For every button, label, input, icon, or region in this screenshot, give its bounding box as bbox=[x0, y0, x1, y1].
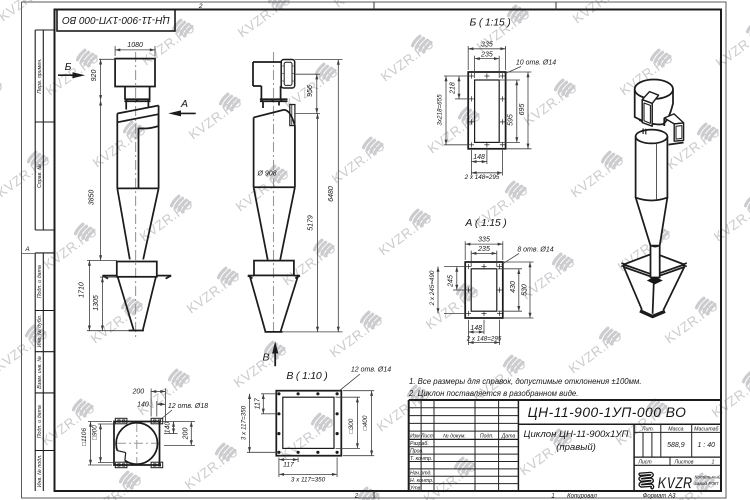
svg-text:235: 235 bbox=[480, 51, 493, 58]
svg-text:12 отв. Ø18: 12 отв. Ø18 bbox=[168, 403, 208, 410]
svg-text:Справ. №: Справ. № bbox=[37, 164, 43, 188]
svg-text:2 х 148=295: 2 х 148=295 bbox=[466, 335, 502, 342]
svg-text:8 отв. Ø14: 8 отв. Ø14 bbox=[517, 247, 553, 254]
svg-text:235: 235 bbox=[477, 246, 490, 253]
svg-text:Б ( 1:15 ): Б ( 1:15 ) bbox=[469, 17, 510, 29]
svg-text:Перв. примен.: Перв. примен. bbox=[37, 58, 43, 93]
svg-text:Взам. инв. №: Взам. инв. № bbox=[37, 356, 43, 389]
svg-text:□1106: □1106 bbox=[81, 428, 88, 446]
svg-text:Ø 908: Ø 908 bbox=[256, 171, 276, 178]
svg-text:3 х 117=350: 3 х 117=350 bbox=[291, 476, 326, 483]
svg-text:3х218=655: 3х218=655 bbox=[437, 94, 444, 126]
svg-text:218: 218 bbox=[450, 82, 457, 95]
svg-text:Лист: Лист bbox=[420, 433, 435, 439]
svg-text:Нач.отд.: Нач.отд. bbox=[410, 471, 432, 477]
svg-text:117: 117 bbox=[283, 462, 294, 469]
svg-text:Подп.: Подп. bbox=[480, 433, 494, 439]
svg-text:588,9: 588,9 bbox=[667, 442, 685, 449]
svg-text:завод РЭП: завод РЭП bbox=[694, 481, 719, 487]
svg-text:А: А bbox=[180, 98, 188, 110]
svg-text:2 х 245=490: 2 х 245=490 bbox=[429, 270, 436, 306]
svg-text:140: 140 bbox=[165, 422, 172, 434]
svg-text:Масштаб: Масштаб bbox=[694, 426, 719, 432]
svg-text:3850: 3850 bbox=[89, 190, 96, 206]
svg-text:117: 117 bbox=[255, 397, 262, 409]
svg-text:1. Все размеры для справок, до: 1. Все размеры для справок, допустимые о… bbox=[409, 377, 642, 386]
svg-text:335: 335 bbox=[478, 236, 490, 243]
svg-text:□900: □900 bbox=[91, 425, 98, 440]
svg-text:Б: Б bbox=[65, 61, 72, 73]
svg-text:3 х 117=350: 3 х 117=350 bbox=[240, 405, 247, 440]
svg-text:245: 245 bbox=[447, 275, 454, 288]
svg-text:2 х 148=295: 2 х 148=295 bbox=[464, 174, 500, 181]
svg-text:□400: □400 bbox=[362, 415, 369, 430]
svg-text:ЦН-11-900-1УП-000 ВО: ЦН-11-900-1УП-000 ВО bbox=[62, 14, 170, 25]
svg-text:Масса: Масса bbox=[668, 426, 683, 432]
svg-text:148: 148 bbox=[473, 154, 485, 161]
svg-text:335: 335 bbox=[481, 41, 493, 48]
svg-text:□300: □300 bbox=[348, 418, 355, 433]
svg-text:Т. контр.: Т. контр. bbox=[410, 456, 432, 462]
svg-text:Дата: Дата bbox=[501, 433, 516, 439]
svg-text:200: 200 bbox=[132, 389, 145, 396]
svg-text:Изм: Изм bbox=[410, 433, 420, 439]
svg-text:12 отв. Ø14: 12 отв. Ø14 bbox=[351, 367, 391, 374]
svg-text:530: 530 bbox=[521, 284, 528, 296]
svg-text:В: В bbox=[262, 352, 269, 364]
svg-text:1710: 1710 bbox=[79, 282, 86, 298]
svg-text:956: 956 bbox=[307, 85, 314, 97]
svg-text:1080: 1080 bbox=[127, 42, 143, 49]
svg-text:Инв. № дубл.: Инв. № дубл. bbox=[37, 315, 43, 348]
svg-text:Формат А3: Формат А3 bbox=[643, 494, 676, 500]
svg-text:Циклон ЦН-11-900х1УП: Циклон ЦН-11-900х1УП bbox=[523, 429, 628, 440]
svg-text:2: 2 bbox=[198, 3, 203, 10]
svg-text:148: 148 bbox=[470, 325, 482, 332]
svg-text:920: 920 bbox=[91, 70, 98, 82]
svg-text:KVZR: KVZR bbox=[658, 474, 693, 493]
svg-text:Копировал: Копировал bbox=[567, 494, 597, 500]
svg-text:А: А bbox=[24, 246, 29, 253]
svg-text:Пров.: Пров. bbox=[410, 449, 424, 455]
svg-text:Лит.: Лит. bbox=[641, 426, 654, 432]
svg-text:Подп. и дата: Подп. и дата bbox=[37, 405, 43, 438]
svg-text:2: 2 bbox=[354, 493, 359, 500]
svg-text:1: 1 bbox=[712, 459, 715, 465]
svg-text:6480: 6480 bbox=[328, 186, 335, 202]
svg-text:695: 695 bbox=[519, 104, 526, 116]
svg-text:1 : 40: 1 : 40 bbox=[698, 442, 716, 449]
svg-text:Подп. и дата: Подп. и дата bbox=[37, 265, 43, 298]
svg-text:1305: 1305 bbox=[93, 295, 100, 311]
svg-text:(правый): (правый) bbox=[556, 442, 596, 453]
svg-text:140: 140 bbox=[137, 401, 149, 408]
svg-text:А ( 1:15 ): А ( 1:15 ) bbox=[464, 217, 506, 229]
svg-text:430: 430 bbox=[510, 281, 517, 293]
svg-text:1: 1 bbox=[551, 494, 554, 500]
svg-text:Инв. № подл.: Инв. № подл. bbox=[37, 454, 43, 487]
svg-text:10 отв. Ø14: 10 отв. Ø14 bbox=[516, 60, 556, 67]
svg-text:2. Циклон поставляется в разоб: 2. Циклон поставляется в разобранном вид… bbox=[408, 389, 578, 398]
svg-text:Утв.: Утв. bbox=[410, 486, 422, 492]
svg-text:Лист: Лист bbox=[637, 459, 652, 465]
svg-text:Листов: Листов bbox=[674, 459, 694, 465]
svg-text:5179: 5179 bbox=[307, 215, 314, 231]
svg-text:200: 200 bbox=[183, 428, 190, 441]
svg-text:595: 595 bbox=[508, 114, 515, 126]
svg-text:В ( 1:10 ): В ( 1:10 ) bbox=[286, 370, 327, 382]
svg-text:Н. контр.: Н. контр. bbox=[410, 478, 433, 484]
svg-text:№ докум.: № докум. bbox=[443, 433, 466, 439]
svg-text:Котельный: Котельный bbox=[695, 474, 721, 481]
svg-text:ЦН-11-900-1УП-000 ВО: ЦН-11-900-1УП-000 ВО bbox=[528, 405, 687, 420]
svg-text:Разраб.: Разраб. bbox=[410, 441, 429, 447]
